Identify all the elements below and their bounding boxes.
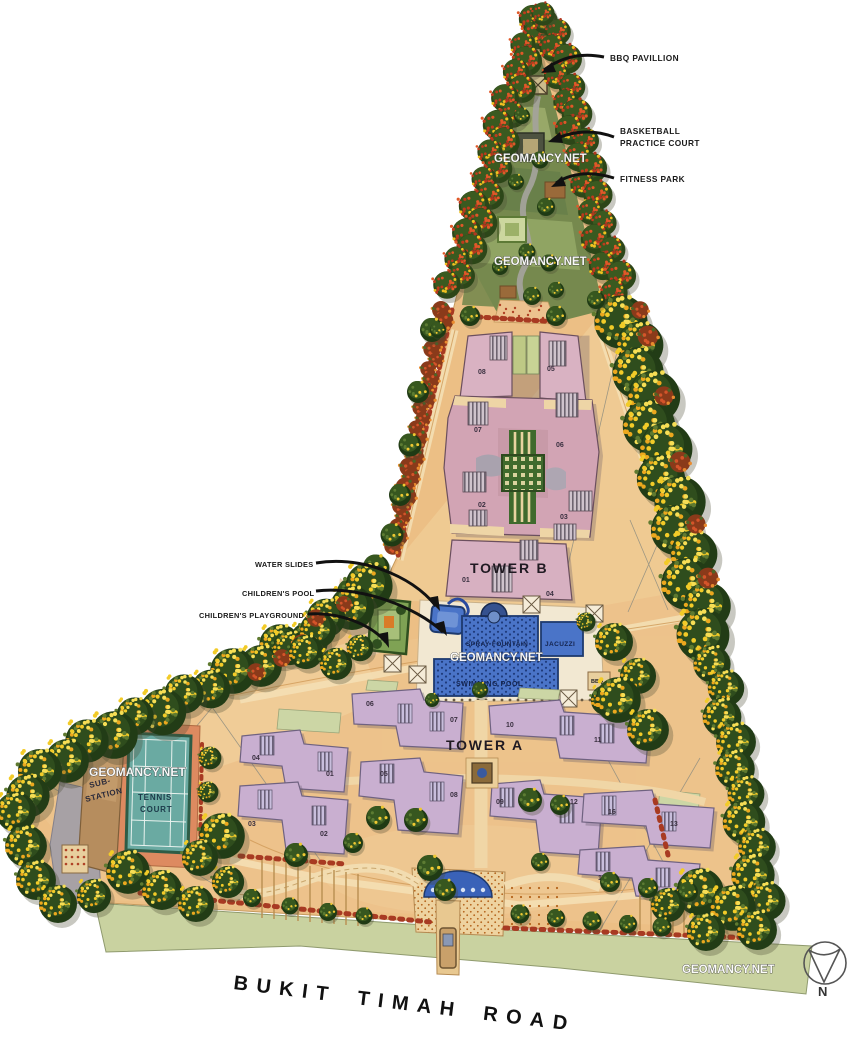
svg-text:16: 16 [608,809,616,816]
svg-text:10: 10 [506,722,514,729]
svg-text:GEOMANCY.NET: GEOMANCY.NET [682,964,775,976]
svg-text:03: 03 [560,514,568,521]
svg-text:WATER SLIDES: WATER SLIDES [255,560,313,569]
svg-text:08: 08 [478,369,486,376]
svg-text:04: 04 [546,591,554,598]
svg-text:01: 01 [326,771,334,778]
svg-text:06: 06 [366,701,374,708]
svg-text:09: 09 [496,799,504,806]
svg-text:02: 02 [320,831,328,838]
svg-text:TENNIS: TENNIS [138,793,172,802]
svg-text:01: 01 [462,577,470,584]
svg-text:BBQ PAVILLION: BBQ PAVILLION [610,53,679,63]
svg-text:SPRAY FOUNTAIN: SPRAY FOUNTAIN [466,641,528,648]
svg-text:07: 07 [474,427,482,434]
svg-text:06: 06 [556,442,564,449]
svg-text:GEOMANCY.NET: GEOMANCY.NET [450,652,543,664]
svg-text:11: 11 [594,737,602,744]
svg-text:08: 08 [450,792,458,799]
svg-text:BASKETBALL: BASKETBALL [620,126,680,136]
svg-text:07: 07 [450,717,458,724]
svg-text:TOWER B: TOWER B [470,560,548,576]
svg-text:N: N [818,984,828,999]
svg-text:02: 02 [478,502,486,509]
svg-text:13: 13 [670,821,678,828]
svg-text:GEOMANCY.NET: GEOMANCY.NET [89,765,186,779]
svg-text:JACUZZI: JACUZZI [545,641,575,648]
svg-text:03: 03 [248,821,256,828]
svg-text:05: 05 [380,771,388,778]
svg-text:COURT: COURT [140,805,172,814]
svg-text:GEOMANCY.NET: GEOMANCY.NET [494,153,587,165]
svg-text:04: 04 [252,755,260,762]
svg-text:CHILDREN'S PLAYGROUND: CHILDREN'S PLAYGROUND [199,611,304,620]
svg-text:SWIMMING POOL: SWIMMING POOL [456,681,523,688]
svg-text:GEOMANCY.NET: GEOMANCY.NET [494,256,587,268]
svg-text:FITNESS PARK: FITNESS PARK [620,174,685,184]
svg-text:PRACTICE COURT: PRACTICE COURT [620,138,700,148]
svg-text:05: 05 [547,366,555,373]
svg-text:CHILDREN'S POOL: CHILDREN'S POOL [242,589,315,598]
svg-text:TOWER A: TOWER A [446,737,524,753]
